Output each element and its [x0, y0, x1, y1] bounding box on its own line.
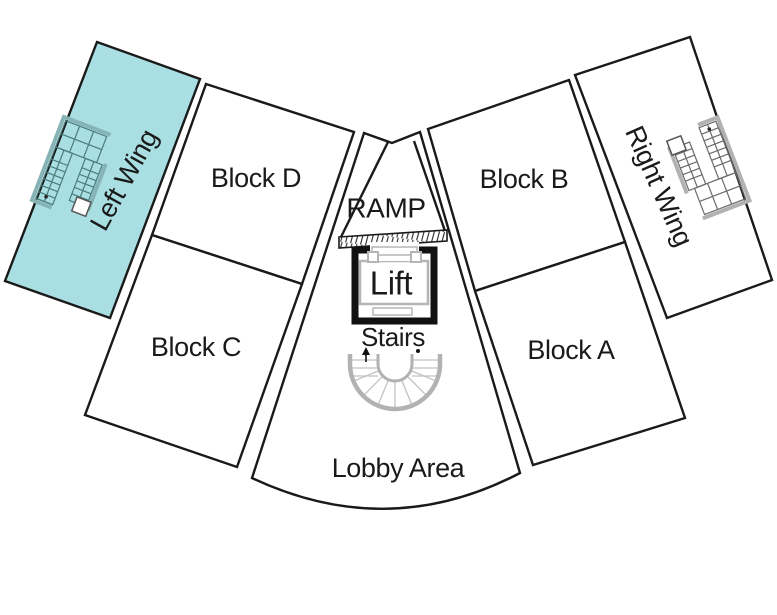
- lobby-label: Lobby Area: [332, 453, 466, 483]
- stairs-start-dot: [416, 349, 420, 353]
- lift-icon: Lift: [355, 242, 434, 321]
- block-a-label: Block A: [527, 335, 615, 365]
- stairs-inner-rail: [378, 354, 412, 381]
- stairs-label: Stairs: [361, 322, 425, 352]
- lift-label: Lift: [370, 265, 413, 302]
- block-b-label: Block B: [480, 164, 569, 194]
- floor-plan-canvas: Left Wing Block D Block C Block B Block …: [0, 0, 777, 615]
- floor-plan: Left Wing Block D Block C Block B Block …: [0, 0, 777, 615]
- lift-door-jamb-left: [368, 252, 378, 262]
- lift-door-jamb-right: [411, 252, 421, 262]
- lift-counterweight-bar: [373, 308, 412, 315]
- block-c-label: Block C: [151, 332, 241, 362]
- block-d-label: Block D: [211, 163, 301, 193]
- ramp-label: RAMP: [346, 193, 425, 224]
- lobby-stairs-icon: Stairs: [350, 322, 440, 409]
